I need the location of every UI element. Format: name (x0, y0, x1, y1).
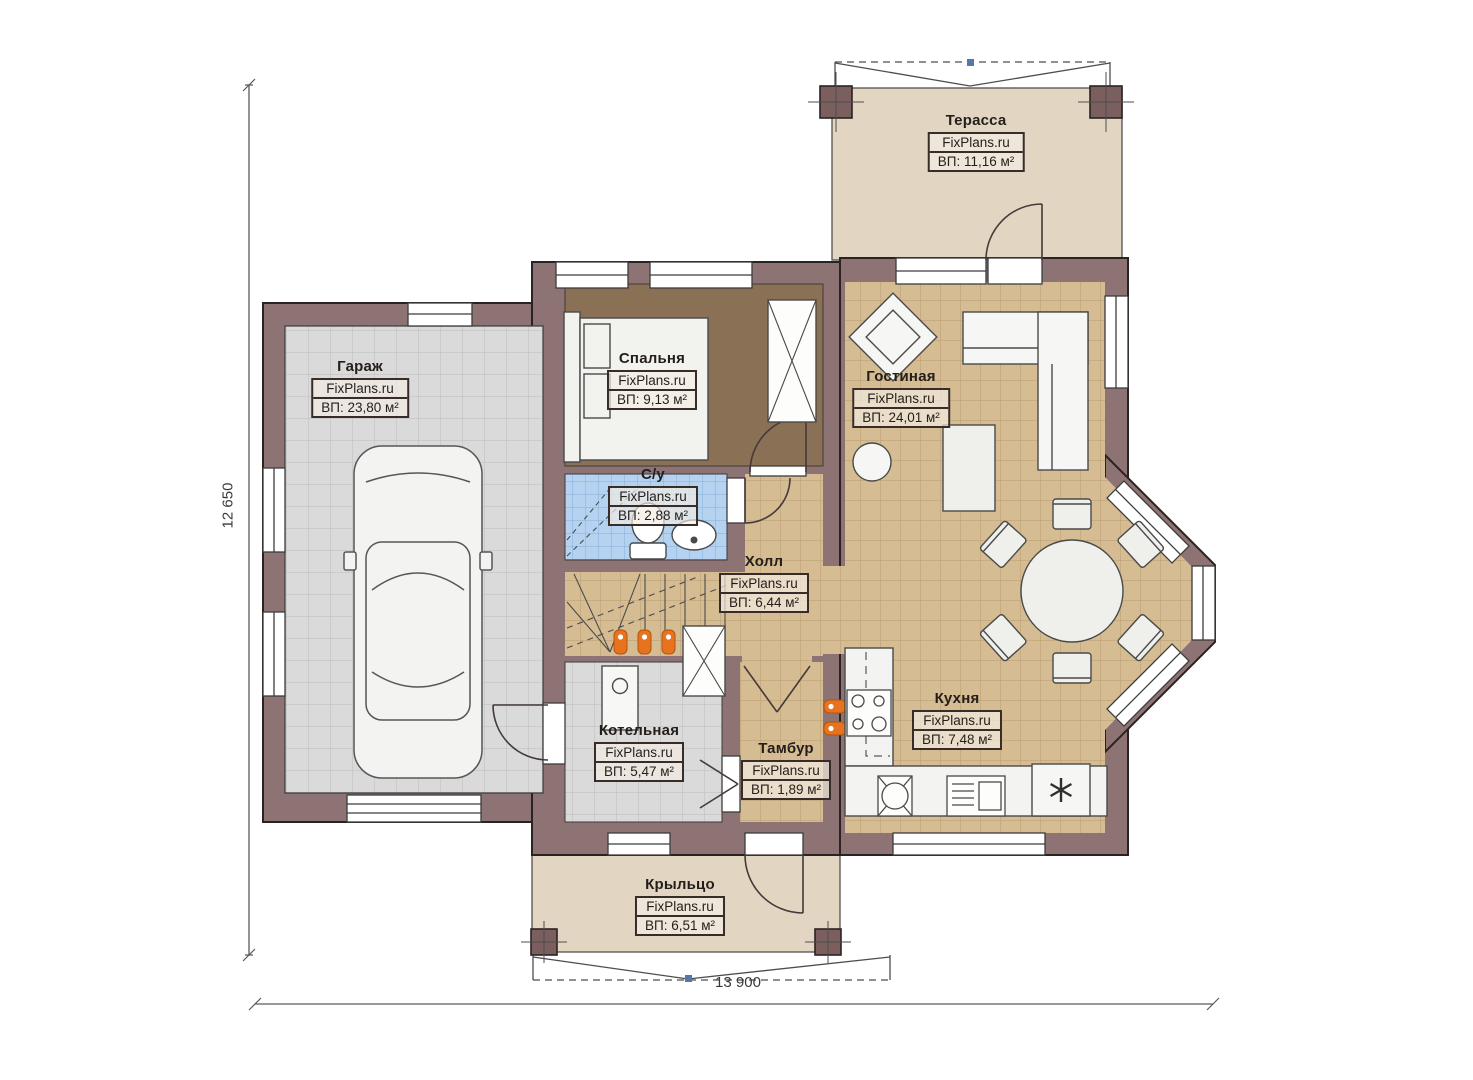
room-label-bathroom: С/у FixPlans.ru ВП: 2,88 м² (608, 466, 698, 526)
room-label-garage: Гараж FixPlans.ru ВП: 23,80 м² (311, 358, 409, 418)
room-name: Кухня (912, 690, 1002, 707)
hall-vestibule-opening (742, 650, 812, 664)
side-table (853, 443, 891, 481)
room-name: Гараж (311, 358, 409, 375)
garage-gate (347, 795, 481, 822)
stove-icon (847, 690, 891, 736)
watermark: FixPlans.ru (609, 372, 695, 391)
watermark-area-box: FixPlans.ru ВП: 5,47 м² (594, 742, 684, 782)
fridge-icon (1032, 764, 1090, 816)
watermark: FixPlans.ru (930, 134, 1023, 153)
watermark-area-box: FixPlans.ru ВП: 23,80 м² (311, 378, 409, 418)
watermark: FixPlans.ru (743, 762, 829, 781)
room-name: Гостиная (852, 368, 950, 385)
living-right-window (1105, 296, 1128, 388)
floor-plan-page: Терасса FixPlans.ru ВП: 11,16 м² Гараж F… (0, 0, 1473, 1080)
room-area: ВП: 7,48 м² (914, 731, 1000, 748)
room-label-bedroom: Спальня FixPlans.ru ВП: 9,13 м² (607, 350, 697, 410)
wardrobe-icon (768, 300, 816, 422)
watermark-area-box: FixPlans.ru ВП: 9,13 м² (607, 370, 697, 410)
room-name: Спальня (607, 350, 697, 367)
terrace-door-opening (988, 258, 1042, 284)
watermark-area-box: FixPlans.ru ВП: 7,48 м² (912, 710, 1002, 750)
bathroom-door-opening (727, 478, 745, 523)
dimension-width-label: 13 900 (715, 974, 761, 991)
room-label-boiler: Котельная FixPlans.ru ВП: 5,47 м² (594, 722, 684, 782)
roof-node-marker (685, 975, 692, 982)
watermark-area-box: FixPlans.ru ВП: 2,88 м² (608, 486, 698, 526)
garage-top-window (408, 303, 472, 326)
bay-window-right (1192, 566, 1215, 640)
garage-left-window-2 (263, 612, 285, 696)
room-area: ВП: 6,44 м² (721, 594, 807, 611)
room-area: ВП: 24,01 м² (854, 409, 948, 426)
terrace-roof (835, 59, 1110, 88)
bedroom-window (650, 262, 752, 288)
kitchen-sink-icon (878, 776, 912, 816)
hall-living-opening (823, 566, 845, 654)
watermark: FixPlans.ru (854, 390, 948, 409)
garage-left-window-1 (263, 468, 285, 552)
garage-boiler-opening (543, 703, 565, 764)
watermark: FixPlans.ru (637, 898, 723, 917)
entry-door-opening (745, 833, 803, 855)
watermark-area-box: FixPlans.ru ВП: 11,16 м² (928, 132, 1025, 172)
room-area: ВП: 5,47 м² (596, 763, 682, 780)
hall-closet-icon (683, 626, 725, 696)
room-name: Котельная (594, 722, 684, 739)
room-area: ВП: 23,80 м² (313, 399, 407, 416)
room-area: ВП: 11,16 м² (930, 153, 1023, 170)
dining-table (1021, 540, 1123, 642)
room-label-porch: Крыльцо FixPlans.ru ВП: 6,51 м² (635, 876, 725, 936)
car (344, 446, 492, 778)
center-top-window (556, 262, 628, 288)
room-name: Крыльцо (635, 876, 725, 893)
room-area: ВП: 9,13 м² (609, 391, 695, 408)
room-area: ВП: 1,89 м² (743, 781, 829, 798)
coffee-table (943, 425, 995, 511)
watermark-area-box: FixPlans.ru ВП: 1,89 м² (741, 760, 831, 800)
room-label-kitchen: Кухня FixPlans.ru ВП: 7,48 м² (912, 690, 1002, 750)
dishwasher-icon (947, 776, 1005, 816)
room-area: ВП: 6,51 м² (637, 917, 723, 934)
kitchen-bottom-window (893, 833, 1045, 855)
watermark: FixPlans.ru (596, 744, 682, 763)
room-label-vestibule: Тамбур FixPlans.ru ВП: 1,89 м² (741, 740, 831, 800)
room-name: Тамбур (741, 740, 831, 757)
dimension-height-label: 12 650 (220, 461, 237, 551)
room-area: ВП: 2,88 м² (610, 507, 696, 524)
porch-roof (533, 955, 890, 982)
bedroom-door-opening (750, 466, 806, 476)
watermark: FixPlans.ru (721, 575, 807, 594)
room-label-living: Гостиная FixPlans.ru ВП: 24,01 м² (852, 368, 950, 428)
room-name: Холл (719, 553, 809, 570)
watermark-area-box: FixPlans.ru ВП: 6,51 м² (635, 896, 725, 936)
watermark-area-box: FixPlans.ru ВП: 6,44 м² (719, 573, 809, 613)
watermark-area-box: FixPlans.ru ВП: 24,01 м² (852, 388, 950, 428)
room-label-terrace: Терасса FixPlans.ru ВП: 11,16 м² (928, 112, 1025, 172)
room-name: Терасса (928, 112, 1025, 129)
watermark: FixPlans.ru (313, 380, 407, 399)
living-top-window (896, 258, 986, 284)
watermark: FixPlans.ru (610, 488, 696, 507)
boiler-unit (602, 666, 638, 730)
watermark: FixPlans.ru (914, 712, 1000, 731)
roof-node-marker (967, 59, 974, 66)
porch-window (608, 833, 670, 855)
room-label-hall: Холл FixPlans.ru ВП: 6,44 м² (719, 553, 809, 613)
room-name: С/у (608, 466, 698, 483)
